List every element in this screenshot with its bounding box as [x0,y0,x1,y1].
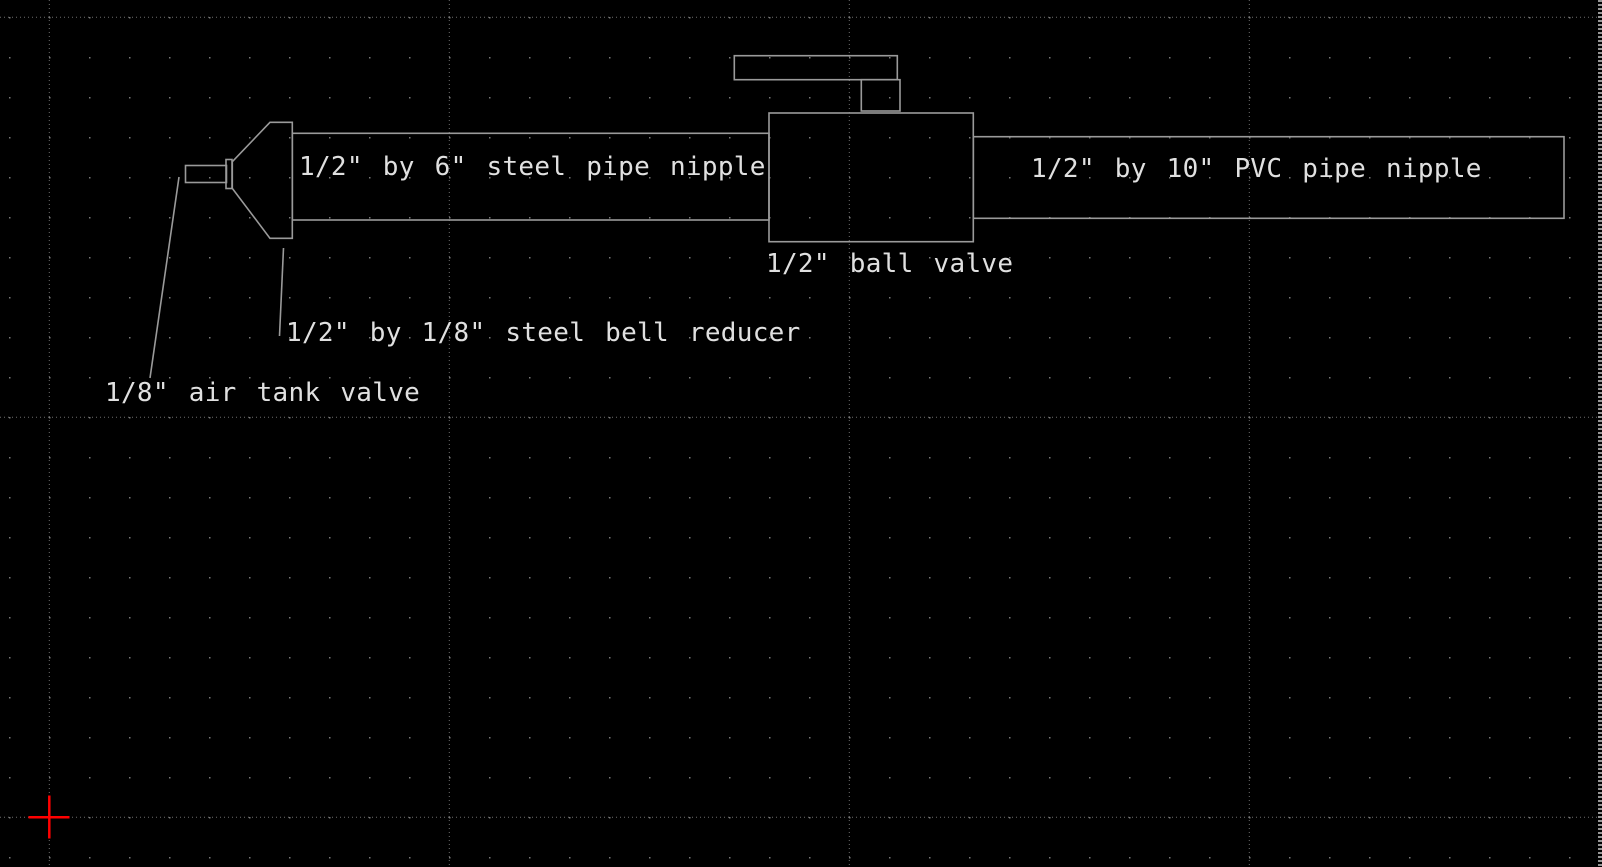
label-pvc-pipe-nipple[interactable]: 1/2" by 10" PVC pipe nipple [1031,156,1482,182]
cad-canvas[interactable]: 1/2" by 6" steel pipe nipple 1/2" by 10"… [0,0,1602,867]
label-steel-pipe-nipple[interactable]: 1/2" by 6" steel pipe nipple [299,154,766,180]
label-bell-reducer[interactable]: 1/2" by 1/8" steel bell reducer [286,320,801,346]
label-air-tank-valve[interactable]: 1/8" air tank valve [105,380,420,406]
drawing-layer [0,0,1602,867]
label-ball-valve[interactable]: 1/2" ball valve [766,251,1013,277]
grid-dots [0,0,1602,867]
